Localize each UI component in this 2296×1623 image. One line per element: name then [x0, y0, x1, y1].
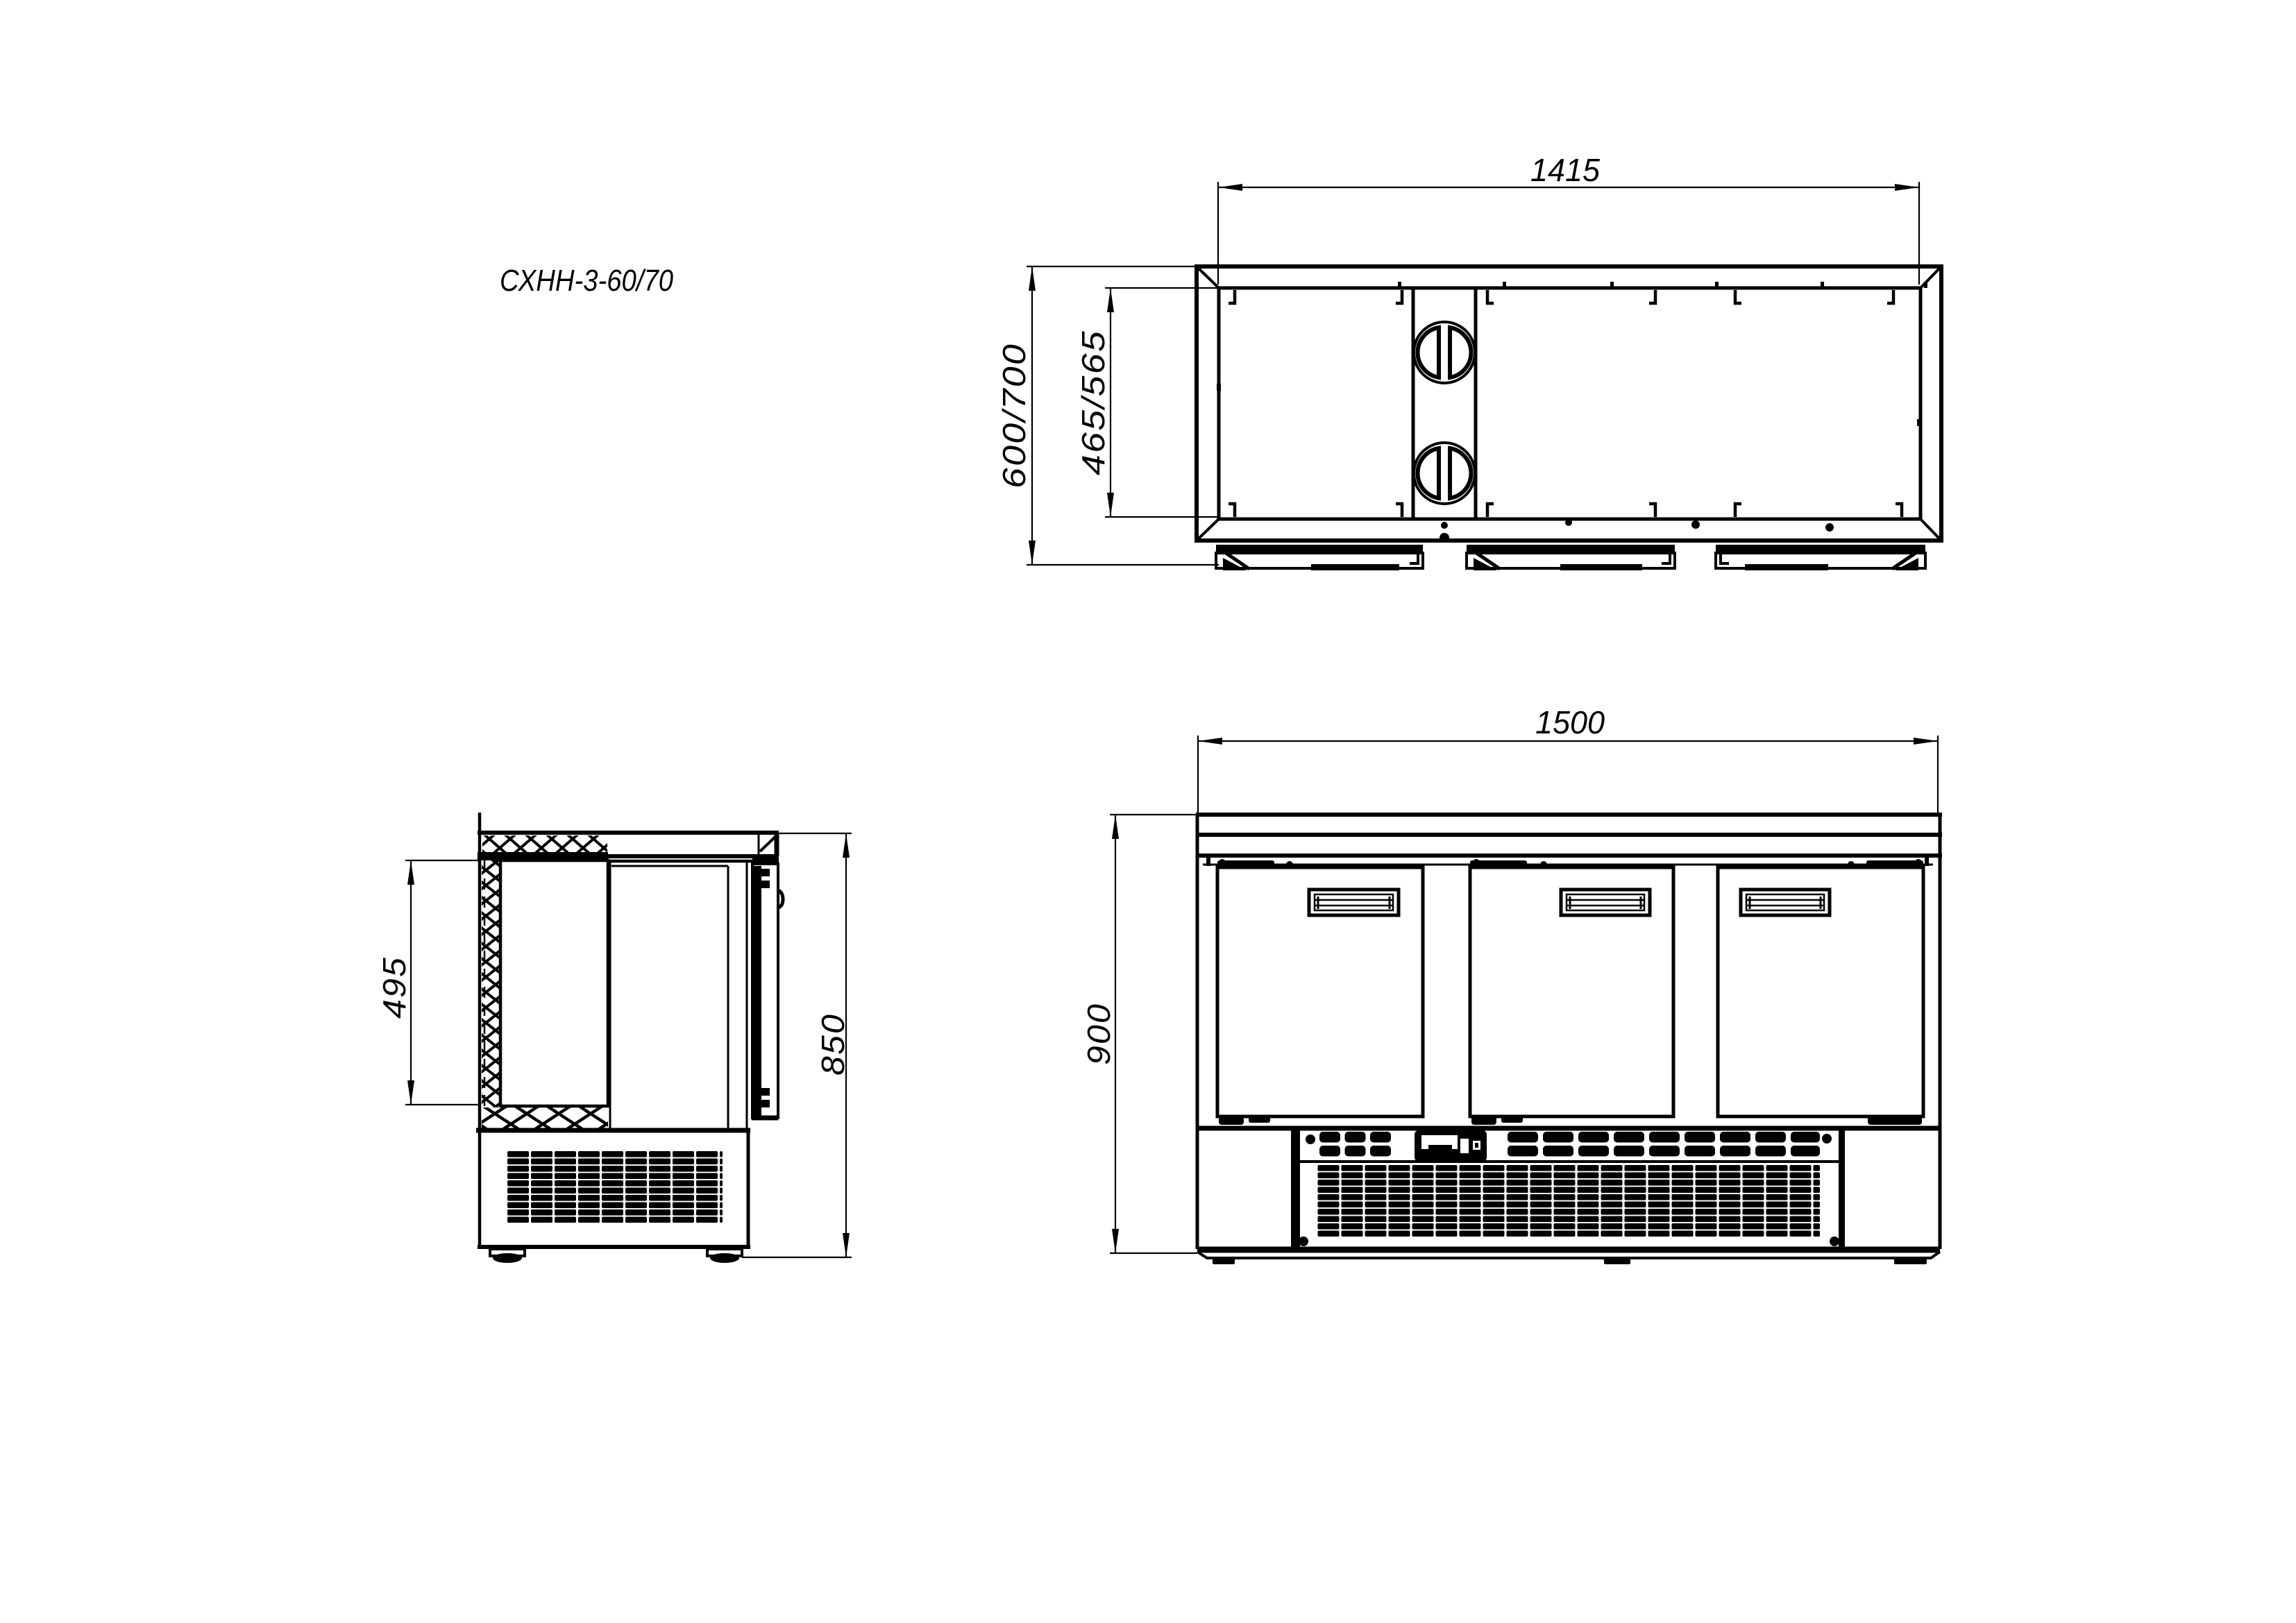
svg-text:1415: 1415	[1530, 152, 1600, 188]
svg-text:900: 900	[1081, 1003, 1117, 1065]
svg-text:СХНН-3-60/70: СХНН-3-60/70	[500, 264, 673, 298]
svg-text:600/700: 600/700	[996, 343, 1032, 488]
svg-text:1500: 1500	[1535, 704, 1605, 740]
svg-text:495: 495	[376, 956, 412, 1019]
svg-text:850: 850	[815, 1013, 851, 1076]
svg-text:465/565: 465/565	[1075, 330, 1111, 475]
